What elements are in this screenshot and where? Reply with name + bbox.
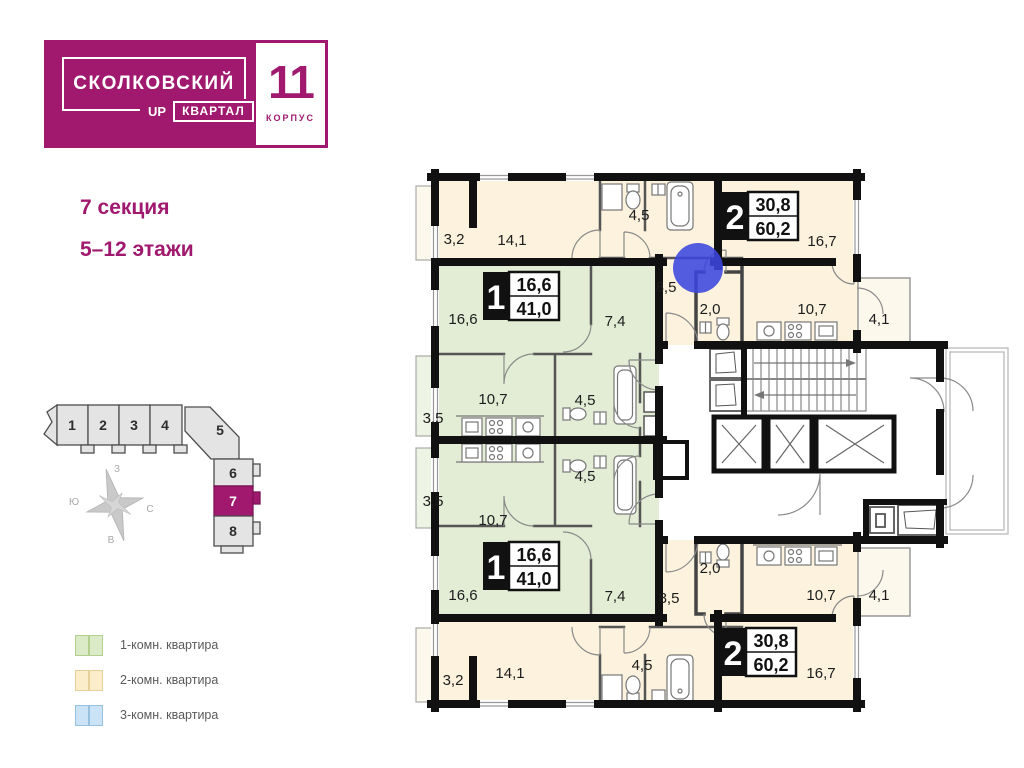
room-area-label: 8,5: [656, 279, 677, 296]
elevators: [714, 417, 894, 471]
badge-room-count: 1: [487, 549, 506, 587]
logo-building-panel: 11 КОРПУС: [256, 43, 325, 145]
legend-swatch-2room: [75, 670, 103, 691]
room-area-label: 3,5: [423, 493, 444, 510]
legend-row-1room: 1-комн. квартира: [75, 634, 218, 656]
room-area-label: 4,5: [632, 657, 653, 674]
minimap-section-5[interactable]: [185, 407, 239, 459]
room-area-label: 7,4: [605, 588, 626, 605]
badge-total-area: 60,2: [753, 655, 788, 675]
room-area-label: 16,7: [807, 233, 836, 250]
core-outdoor-balcony: [946, 348, 1008, 534]
badge-total-area: 41,0: [516, 299, 551, 319]
room-area-label: 3,5: [423, 410, 444, 427]
building-label: КОРПУС: [266, 113, 315, 123]
apartment-badge-1k-top[interactable]: 1 16,6 41,0: [483, 272, 559, 320]
badge-room-count: 1: [487, 279, 506, 317]
logo-brand-text: СКОЛКОВСКИЙ: [73, 73, 234, 95]
room-area-label: 4,5: [575, 468, 596, 485]
room-area-label: 10,7: [797, 301, 826, 318]
trash-room: [870, 505, 942, 535]
minimap-section-number: 5: [216, 422, 224, 438]
legend-label-2room: 2-комн. квартира: [120, 673, 218, 687]
legend-swatch-3room: [75, 705, 103, 726]
apartment-badge-2k-bottom[interactable]: 2 30,8 60,2: [720, 628, 796, 676]
compass-east-label: В: [108, 535, 115, 546]
badge-room-count: 2: [726, 199, 745, 237]
room-area-label: 16,6: [448, 587, 477, 604]
room-area-label: 3,2: [444, 231, 465, 248]
section-title: 7 секция: [80, 196, 169, 220]
legend-label-3room: 3-комн. квартира: [120, 708, 218, 722]
room-area-label: 16,6: [448, 311, 477, 328]
room-area-label: 4,1: [869, 587, 890, 604]
room-area-label: 7,4: [605, 313, 626, 330]
badge-living-area: 30,8: [753, 631, 788, 651]
legend-row-2room: 2-комн. квартира: [75, 669, 218, 691]
apartment-badge-1k-bottom[interactable]: 1 16,6 41,0: [483, 542, 559, 590]
compass-west-label: З: [114, 464, 120, 475]
room-area-label: 2,0: [700, 560, 721, 577]
legend-label-1room: 1-комн. квартира: [120, 638, 218, 652]
room-area-label: 4,1: [869, 311, 890, 328]
minimap-section-number: 8: [229, 523, 237, 539]
room-area-label: 3,2: [443, 672, 464, 689]
minimap-section-number: 1: [68, 417, 76, 433]
floor-plan: 3,2 14,1 4,5 8,5 2,0 16,7 10,7 4,1 16,6 …: [408, 166, 1024, 722]
badge-living-area: 16,6: [516, 275, 551, 295]
badge-total-area: 60,2: [755, 219, 790, 239]
legend-swatch-1room: [75, 635, 103, 656]
page: { "logo": { "brand": "СКОЛКОВСКИЙ", "qua…: [0, 0, 1024, 768]
minimap-notch: [143, 445, 156, 453]
minimap-section-number: 4: [161, 417, 169, 433]
badge-room-count: 2: [724, 635, 743, 673]
minimap-active-section-number: 7: [229, 493, 237, 509]
storage-rooms: [710, 349, 742, 411]
legend-row-3room: 3-комн. квартира: [75, 704, 218, 726]
room-area-label: 14,1: [495, 665, 524, 682]
compass-north-label: С: [146, 504, 153, 515]
minimap-notch: [253, 464, 260, 476]
room-area-label: 14,1: [497, 232, 526, 249]
minimap-notch: [221, 546, 243, 553]
room-area-label: 10,7: [806, 587, 835, 604]
minimap-section-number: 6: [229, 465, 237, 481]
legend: 1-комн. квартира 2-комн. квартира 3-комн…: [75, 634, 218, 739]
logo-up-text: UP: [148, 104, 166, 119]
building-number: 11: [268, 59, 313, 105]
room-area-label: 16,7: [806, 665, 835, 682]
minimap-notch: [81, 445, 94, 453]
room-area-label: 2,0: [700, 301, 721, 318]
building-minimap: 1 2 3 4 5 6 7 8 З Ю С В: [40, 388, 270, 563]
apartment-badge-2k-top[interactable]: 2 30,8 60,2: [722, 192, 798, 240]
room-area-label: 8,5: [659, 590, 680, 607]
balcony-4_1-bottom: [858, 548, 910, 616]
minimap-notch: [253, 492, 260, 504]
room-area-label: 4,5: [575, 392, 596, 409]
selection-marker: [673, 243, 723, 293]
badge-total-area: 41,0: [516, 569, 551, 589]
logo: СКОЛКОВСКИЙ UP КВАРТАЛ 11 КОРПУС: [44, 40, 328, 148]
compass-south-label: Ю: [69, 497, 79, 508]
logo-kvartal-text: КВАРТАЛ: [173, 101, 254, 122]
minimap-section-number: 3: [130, 417, 138, 433]
floors-title: 5–12 этажи: [80, 238, 194, 262]
minimap-notch: [174, 445, 187, 453]
minimap-notch: [253, 522, 260, 534]
badge-living-area: 16,6: [516, 545, 551, 565]
room-area-label: 10,7: [478, 391, 507, 408]
room-area-label: 4,5: [629, 207, 650, 224]
badge-living-area: 30,8: [755, 195, 790, 215]
minimap-left-edge: [44, 405, 57, 445]
logo-quarter-row: UP КВАРТАЛ: [140, 99, 254, 124]
minimap-section-number: 2: [99, 417, 107, 433]
room-area-label: 10,7: [478, 512, 507, 529]
minimap-notch: [112, 445, 125, 453]
